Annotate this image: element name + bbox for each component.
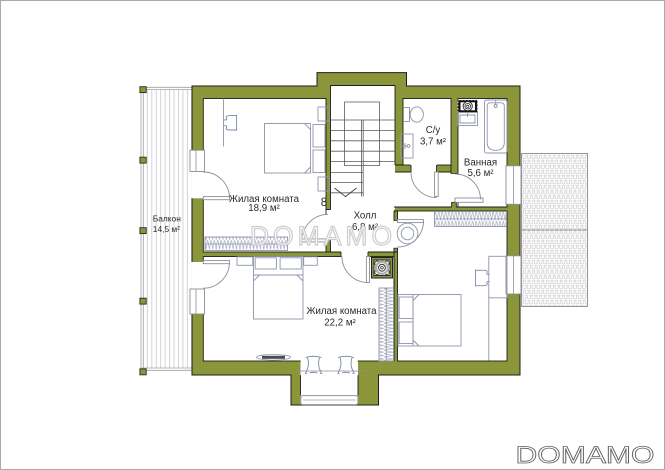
svg-text:Жилая комната: Жилая комната	[307, 306, 378, 317]
svg-text:8: 8	[321, 197, 327, 209]
svg-text:DOMAMO: DOMAMO	[516, 442, 655, 469]
svg-text:Балкон: Балкон	[153, 214, 181, 224]
svg-text:18,9 м²: 18,9 м²	[248, 203, 280, 214]
svg-text:5,6 м²: 5,6 м²	[467, 168, 494, 179]
svg-text:3,7 м²: 3,7 м²	[420, 137, 447, 148]
svg-text:22,2 м²: 22,2 м²	[324, 318, 356, 329]
svg-text:14,5 м²: 14,5 м²	[153, 224, 180, 234]
svg-text:С/у: С/у	[426, 125, 441, 136]
svg-text:DOMAMO: DOMAMO	[250, 221, 396, 251]
